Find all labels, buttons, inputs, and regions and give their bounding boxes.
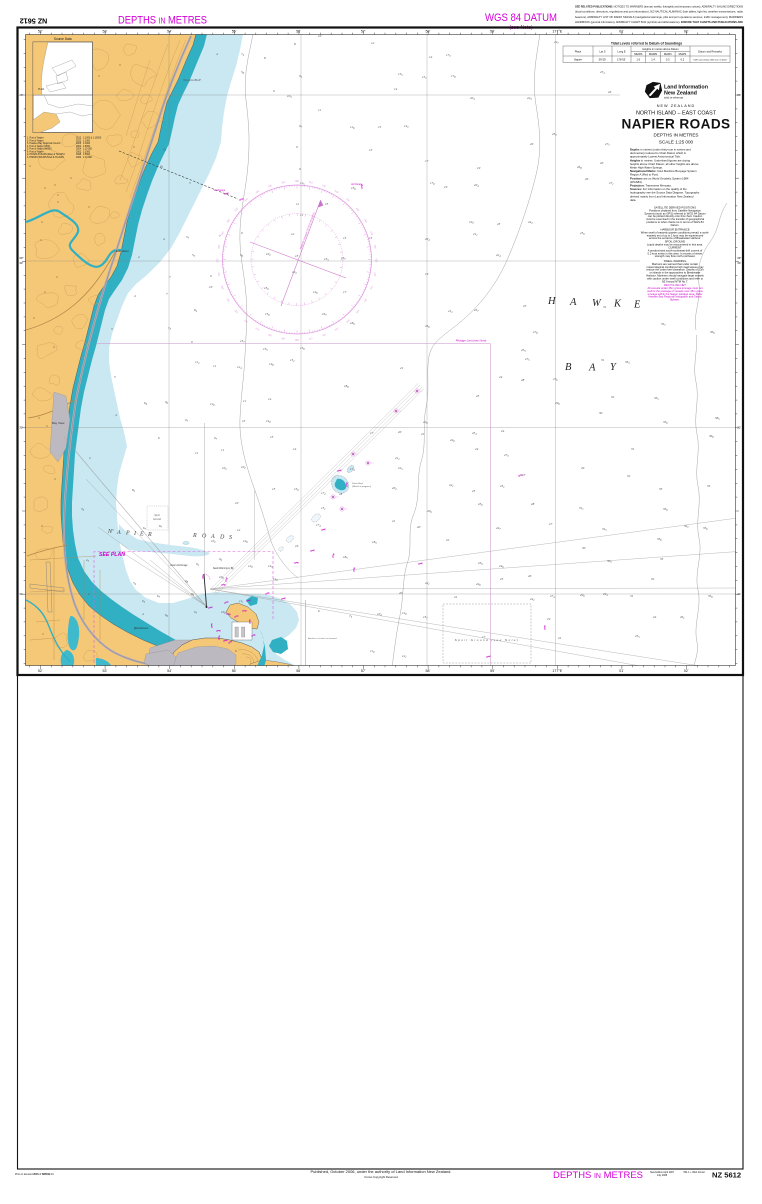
svg-text:39°29´: 39°29´: [599, 58, 607, 62]
svg-text:31: 31: [601, 358, 605, 362]
svg-text:30´: 30´: [737, 261, 741, 265]
svg-text:D: D: [219, 535, 225, 541]
svg-text:Datum and Remarks: Datum and Remarks: [698, 50, 722, 54]
svg-text:Bylaws.: Bylaws.: [670, 298, 680, 302]
svg-text:25: 25: [523, 304, 527, 308]
svg-text:Napier: Napier: [574, 58, 582, 62]
svg-text:14: 14: [394, 87, 398, 91]
svg-text:58´: 58´: [425, 669, 430, 673]
svg-text:4. Port of Napier MSW: 4. Port of Napier MSW: [27, 145, 51, 148]
svg-text:NEW ZEALAND: NEW ZEALAND: [657, 104, 695, 108]
svg-text:13: 13: [272, 487, 276, 491]
svg-text:LWD varies below LWD over ch.6: LWD varies below LWD over ch.6004: [694, 60, 728, 62]
svg-text:data.: data.: [630, 198, 636, 202]
svg-text:Lat S: Lat S: [599, 50, 605, 54]
svg-text:July 2008: July 2008: [657, 1174, 668, 1177]
svg-text:23: 23: [476, 394, 480, 398]
svg-text:1:10 000: 1:10 000: [83, 149, 93, 151]
svg-text:17: 17: [425, 159, 429, 163]
svg-text:(Works in progress): (Works in progress): [352, 486, 371, 488]
svg-text:35: 35: [707, 484, 711, 488]
svg-text:11: 11: [221, 448, 224, 452]
svg-text:25: 25: [472, 489, 476, 493]
svg-text:1992: 1992: [76, 157, 82, 159]
svg-text:Tidal Levels referred to Datum: Tidal Levels referred to Datum of Soundi…: [611, 41, 682, 45]
svg-text:30: 30: [599, 411, 603, 415]
svg-text:19: 19: [477, 166, 481, 170]
svg-text:Pania Reef: Pania Reef: [352, 483, 363, 485]
svg-text:Place: Place: [575, 50, 582, 54]
svg-text:0.3: 0.3: [666, 58, 670, 62]
svg-text:17: 17: [482, 635, 486, 639]
svg-text:Bay View: Bay View: [52, 421, 65, 425]
svg-text:1.6: 1.6: [636, 58, 640, 62]
svg-text:10: 10: [235, 501, 239, 505]
svg-text:55´: 55´: [232, 30, 237, 34]
svg-text:14: 14: [268, 397, 272, 401]
svg-text:2004: 2004: [76, 149, 82, 151]
svg-text:24: 24: [475, 447, 479, 451]
svg-text:21: 21: [558, 636, 562, 640]
svg-text:MHWS: MHWS: [634, 52, 642, 56]
svg-text:28´: 28´: [737, 93, 741, 97]
svg-text:SEE RELATED PUBLICATIONS: NOTI: SEE RELATED PUBLICATIONS: NOTICES TO MAR…: [575, 5, 743, 9]
svg-text:A: A: [569, 297, 577, 308]
svg-text:1:1000: 1:1000: [83, 140, 91, 142]
svg-text:25: 25: [500, 577, 504, 581]
svg-text:21: 21: [454, 595, 458, 599]
svg-text:21: 21: [400, 366, 404, 370]
svg-text:57´: 57´: [361, 30, 366, 34]
svg-text:177°E: 177°E: [552, 669, 562, 673]
svg-text:52´: 52´: [38, 30, 43, 34]
svg-text:1:5000: 1:5000: [83, 154, 91, 156]
svg-text:26: 26: [600, 161, 604, 165]
svg-text:26: 26: [528, 574, 532, 578]
svg-text:17: 17: [370, 431, 374, 435]
svg-text:11: 11: [213, 364, 216, 368]
svg-text:1:10 000: 1:10 000: [83, 157, 93, 159]
svg-text:H: H: [547, 296, 557, 307]
svg-text:30: 30: [582, 546, 586, 550]
svg-text:NZ Annual NTM No.7.: NZ Annual NTM No.7.: [662, 279, 689, 283]
svg-text:Crown Copyright Reserved: Crown Copyright Reserved: [364, 1175, 398, 1179]
svg-text:11: 11: [296, 202, 299, 206]
svg-text:28´: 28´: [19, 93, 23, 97]
svg-text:15: 15: [343, 236, 347, 240]
svg-text:32´: 32´: [737, 426, 741, 430]
svg-text:24: 24: [499, 375, 503, 379]
svg-text:1.4: 1.4: [651, 58, 655, 62]
svg-text:Source Data: Source Data: [54, 37, 72, 41]
svg-text:NZ 5612: NZ 5612: [712, 1171, 741, 1180]
svg-text:55´: 55´: [232, 669, 237, 673]
svg-text:02´: 02´: [684, 669, 689, 673]
svg-text:20: 20: [417, 525, 421, 529]
svg-text:21: 21: [421, 432, 425, 436]
svg-text:19: 19: [547, 617, 551, 621]
svg-text:27: 27: [522, 473, 526, 477]
svg-text:176°55´: 176°55´: [617, 58, 626, 62]
svg-text:59´: 59´: [490, 669, 495, 673]
svg-text:A: A: [116, 530, 121, 536]
svg-text:Anchors or trawls are banned: Anchors or trawls are banned: [307, 637, 337, 640]
svg-text:NZ 5612: NZ 5612: [20, 17, 48, 26]
svg-text:28: 28: [521, 378, 525, 382]
svg-text:31: 31: [631, 447, 635, 451]
svg-text:1:1000 & 1:10000: 1:1000 & 1:10000: [83, 138, 102, 140]
svg-text:DEPTHS IN METRES: DEPTHS IN METRES: [118, 15, 207, 27]
svg-text:Pilotage Limit (see Note): Pilotage Limit (see Note): [456, 339, 487, 343]
svg-text:strength may flow north-northe: strength may flow north-northeast.: [655, 254, 696, 258]
svg-text:1:1000: 1:1000: [83, 151, 91, 153]
svg-text:19: 19: [444, 185, 448, 189]
svg-text:29: 29: [581, 466, 585, 470]
svg-text:32´: 32´: [19, 426, 23, 430]
svg-text:35: 35: [659, 487, 663, 491]
svg-text:23: 23: [497, 222, 501, 226]
svg-text:39°: 39°: [19, 256, 23, 260]
svg-text:R: R: [147, 532, 152, 538]
svg-text:HANDBOOK (general information): HANDBOOK (general information), ADMIRALT…: [575, 20, 743, 24]
svg-text:b. HMNZS TAKAPUNGA & TAUAPU: b. HMNZS TAKAPUNGA & TAUAPU: [27, 156, 64, 159]
svg-text:21: 21: [392, 519, 396, 523]
svg-text:31: 31: [630, 594, 634, 598]
svg-text:Published, October 2006, under: Published, October 2006, under the autho…: [311, 1169, 452, 1174]
svg-text:58´: 58´: [425, 30, 430, 34]
svg-text:18: 18: [339, 492, 343, 496]
svg-text:W: W: [592, 298, 602, 309]
svg-text:Spoil Ground (see Note): Spoil Ground (see Note): [455, 638, 520, 642]
svg-text:11: 11: [243, 399, 246, 403]
svg-text:E: E: [139, 532, 144, 538]
svg-text:53´: 53´: [102, 30, 107, 34]
svg-text:13: 13: [242, 419, 246, 423]
svg-text:12: 12: [371, 41, 375, 45]
svg-text:S: S: [229, 535, 232, 541]
svg-text:Swell Warning Lt By: Swell Warning Lt By: [213, 567, 234, 570]
svg-text:DEPTHS IN METRES: DEPTHS IN METRES: [654, 133, 699, 138]
svg-text:NAPIER ROADS: NAPIER ROADS: [621, 117, 730, 132]
svg-text:2004: 2004: [76, 146, 82, 148]
svg-text:Long E: Long E: [617, 50, 625, 54]
svg-text:30´: 30´: [19, 261, 23, 265]
svg-text:54´: 54´: [167, 30, 172, 34]
svg-text:A: A: [588, 363, 596, 374]
svg-text:11: 11: [318, 108, 321, 112]
svg-text:31: 31: [603, 305, 607, 309]
svg-text:WGS 84 DATUM: WGS 84 DATUM: [485, 12, 557, 24]
svg-text:22: 22: [446, 538, 450, 542]
svg-text:20: 20: [399, 591, 403, 595]
svg-text:59´: 59´: [490, 30, 495, 34]
svg-text:5. Port of Napier MHWS: 5. Port of Napier MHWS: [27, 148, 52, 151]
svg-text:SEE PLAN: SEE PLAN: [99, 552, 125, 558]
svg-text:57´: 57´: [361, 669, 366, 673]
svg-text:O: O: [202, 534, 207, 540]
svg-text:15: 15: [378, 125, 382, 129]
svg-text:11: 11: [300, 213, 303, 217]
svg-text:13: 13: [270, 435, 274, 439]
svg-text:16: 16: [295, 544, 299, 548]
svg-text:26: 26: [608, 90, 612, 94]
svg-text:1:5000: 1:5000: [83, 146, 91, 148]
svg-text:32: 32: [611, 395, 615, 399]
svg-text:Anchorage: Anchorage: [213, 189, 226, 192]
svg-text:56´: 56´: [296, 30, 301, 34]
svg-text:P: P: [125, 531, 130, 537]
svg-text:28: 28: [531, 502, 535, 506]
svg-text:2002: 2002: [76, 151, 82, 153]
svg-text:02´: 02´: [684, 30, 689, 34]
svg-text:11: 11: [195, 451, 198, 455]
svg-text:01´: 01´: [619, 30, 624, 34]
svg-text:E: E: [633, 300, 641, 311]
svg-text:12: 12: [291, 232, 295, 236]
svg-text:3. Hawkes Bay Regional Council: 3. Hawkes Bay Regional Council: [27, 143, 61, 145]
svg-text:52´: 52´: [38, 669, 43, 673]
svg-text:32: 32: [651, 577, 655, 581]
svg-text:34´: 34´: [19, 592, 23, 596]
svg-text:a. HDNZS TAKAPU(tilde) & TAUAP: a. HDNZS TAKAPU(tilde) & TAUAPU: [27, 153, 65, 156]
svg-text:1995: 1995: [76, 154, 82, 156]
svg-text:1. Port of Napier: 1. Port of Napier: [27, 137, 44, 140]
svg-text:2012: 2012: [76, 138, 82, 140]
svg-text:Westshore: Westshore: [134, 626, 149, 630]
svg-text:K: K: [613, 299, 622, 310]
svg-text:24: 24: [501, 429, 505, 433]
svg-text:56´: 56´: [296, 669, 301, 673]
svg-text:PLAN: PLAN: [38, 88, 45, 91]
svg-text:2012: 2012: [76, 140, 82, 142]
svg-text:derived mainly from Land Infor: derived mainly from Land Information New…: [630, 194, 694, 198]
svg-text:Esk River: Esk River: [116, 249, 130, 253]
svg-text:2005: 2005: [76, 143, 82, 145]
svg-text:34´: 34´: [737, 592, 741, 596]
svg-text:12: 12: [237, 528, 241, 532]
svg-text:24: 24: [653, 615, 657, 619]
svg-text:177°E: 177°E: [552, 30, 562, 34]
svg-text:Datum.: Datum.: [671, 223, 680, 227]
svg-text:MHWN: MHWN: [649, 52, 657, 56]
svg-text:beacons), ADMIRALTY LIST OF RA: beacons), ADMIRALTY LIST OF RADIO SIGNAL…: [575, 15, 743, 19]
svg-text:R: R: [192, 533, 197, 539]
svg-text:01´: 01´: [619, 669, 624, 673]
svg-text:54´: 54´: [167, 669, 172, 673]
svg-text:toitū te whenua: toitū te whenua: [664, 96, 683, 100]
svg-text:0.2: 0.2: [681, 58, 685, 62]
svg-text:Heights in metres above Datum: Heights in metres above Datum: [642, 47, 678, 51]
svg-text:32: 32: [627, 474, 631, 478]
svg-text:13: 13: [295, 254, 299, 258]
svg-text:Print on demand 2016 of NZ5612: Print on demand 2016 of NZ5612.01: [15, 1173, 54, 1176]
svg-text:20: 20: [398, 430, 402, 434]
svg-text:10: 10: [209, 285, 213, 289]
svg-text:17: 17: [343, 290, 347, 294]
svg-text:6. Port of Napier: 6. Port of Napier: [27, 150, 44, 153]
svg-text:13: 13: [325, 202, 329, 206]
svg-text:B: B: [565, 362, 572, 373]
svg-text:1:1000: 1:1000: [83, 143, 91, 145]
svg-text:27: 27: [549, 522, 553, 526]
svg-text:26: 26: [585, 177, 589, 181]
svg-text:14: 14: [293, 447, 297, 451]
svg-text:Ground: Ground: [153, 518, 162, 521]
svg-text:13: 13: [369, 148, 373, 152]
svg-text:MLWN: MLWN: [664, 52, 672, 56]
svg-text:SCALE 1:25 000: SCALE 1:25 000: [659, 140, 694, 145]
svg-text:15: 15: [369, 236, 373, 240]
svg-text:Tangoio Bluff: Tangoio Bluff: [183, 78, 202, 82]
svg-text:Spoil: Spoil: [154, 514, 160, 517]
svg-text:Outer Anchorage: Outer Anchorage: [170, 564, 188, 567]
svg-text:501.1 + Web format: 501.1 + Web format: [683, 1171, 704, 1174]
svg-text:2. Port of Napier: 2. Port of Napier: [27, 139, 44, 142]
svg-text:MLWS: MLWS: [679, 52, 687, 56]
svg-text:19: 19: [425, 272, 429, 276]
svg-text:39°: 39°: [737, 256, 741, 260]
svg-text:14: 14: [429, 55, 433, 59]
svg-text:53´: 53´: [102, 669, 107, 673]
svg-text:(local conditions, directions,: (local conditions, directions, regulatio…: [575, 10, 743, 14]
svg-text:20: 20: [530, 142, 534, 146]
svg-text:33: 33: [660, 557, 664, 561]
